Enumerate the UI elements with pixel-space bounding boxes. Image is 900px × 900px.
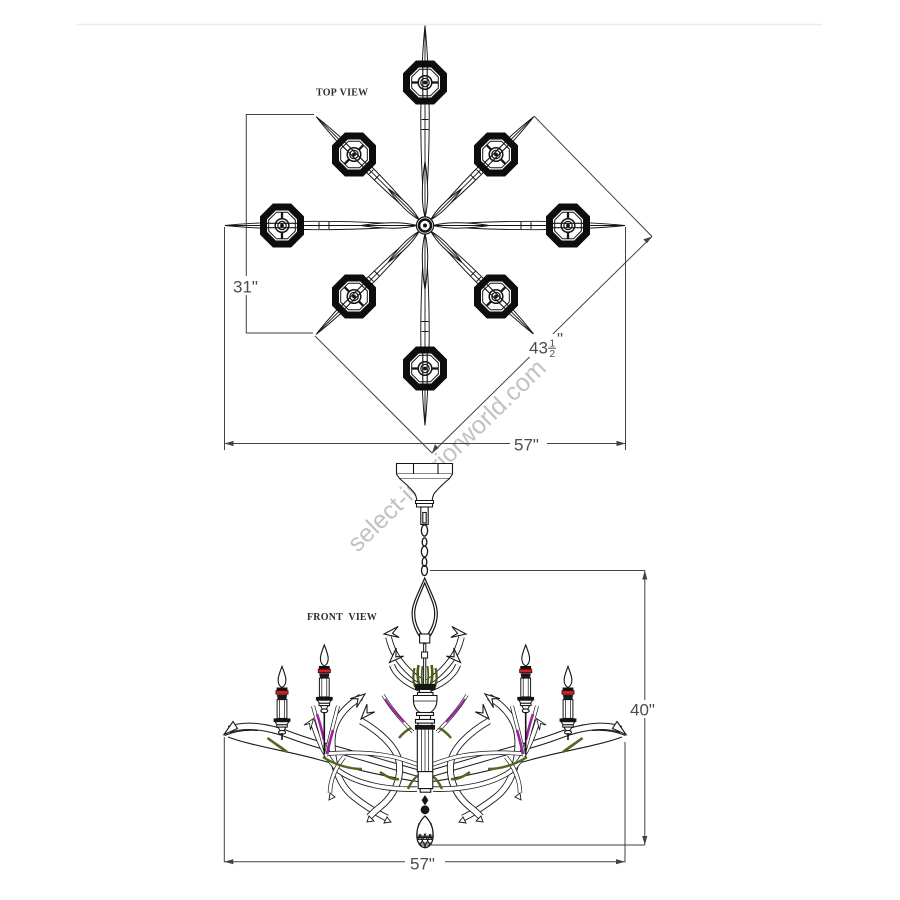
svg-text:40": 40" (630, 701, 655, 720)
svg-text:31": 31" (233, 277, 258, 296)
svg-text:TOP VIEW: TOP VIEW (316, 88, 368, 99)
svg-text:43: 43 (529, 339, 548, 358)
svg-text:": " (557, 330, 563, 349)
svg-text:FRONT VIEW: FRONT VIEW (307, 612, 377, 623)
svg-text:57": 57" (410, 854, 435, 873)
svg-text:2: 2 (550, 349, 556, 360)
svg-text:57": 57" (514, 436, 539, 455)
svg-text:select-interiorworld.com: select-interiorworld.com (342, 354, 551, 558)
